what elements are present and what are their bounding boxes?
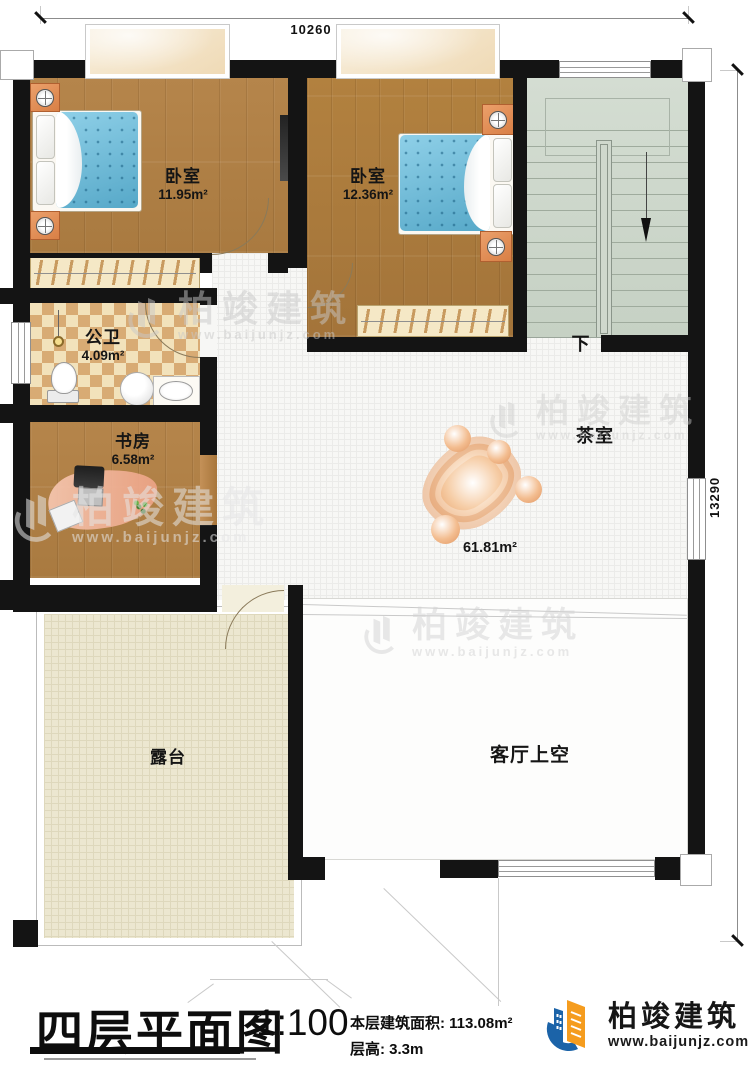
room-name: 书房 <box>78 432 188 452</box>
pillow <box>36 115 55 159</box>
scale-label: 1:100 <box>256 1002 349 1044</box>
room-label-tearoom: 茶室 <box>545 426 645 447</box>
room-name: 茶室 <box>545 426 645 447</box>
bed-sheet <box>56 112 82 208</box>
brand-website: www.baijunjz.com <box>608 1035 749 1050</box>
roof-line <box>383 888 501 1002</box>
stairs-down-label: 下 <box>566 334 596 355</box>
floor-height-value: 3.3m <box>389 1041 423 1058</box>
tv-panel <box>280 115 288 181</box>
title-underline <box>30 1047 240 1054</box>
wall <box>601 335 688 352</box>
wall-pier <box>0 580 14 610</box>
brand-logo: 柏竣建筑 www.baijunjz.com <box>540 994 749 1058</box>
room-name: 客厅上空 <box>450 745 610 767</box>
floor-height-label: 层高: <box>350 1041 385 1058</box>
brand-name: 柏竣建筑 <box>608 1002 749 1032</box>
room-area: 6.58m² <box>78 452 188 468</box>
lamp-icon <box>36 217 54 235</box>
roof-gable-line <box>210 979 328 980</box>
stair-arrow-line <box>646 152 647 218</box>
wall <box>497 60 559 78</box>
wall-pier <box>0 404 14 423</box>
wall <box>288 585 303 857</box>
room-area: 11.95m² <box>128 187 238 203</box>
wardrobe <box>30 256 200 289</box>
room-label-bedroom-left: 卧室 11.95m² <box>128 167 238 202</box>
room-name: 卧室 <box>313 167 423 187</box>
floor-height-row: 层高: 3.3m <box>350 1038 423 1059</box>
room-name: 公卫 <box>48 328 158 348</box>
nightstand <box>30 211 60 240</box>
wall-pier <box>288 857 325 880</box>
nightstand <box>30 83 60 112</box>
pillow <box>493 184 512 228</box>
room-area: 4.09m² <box>48 348 158 364</box>
stair-rail <box>596 140 612 338</box>
ledge <box>682 48 712 82</box>
room-area: 61.81m² <box>430 540 550 557</box>
ledge <box>0 50 34 80</box>
wall <box>440 860 498 878</box>
study-door-panel <box>200 455 217 525</box>
mattress <box>56 112 138 208</box>
nightstand <box>480 231 512 262</box>
tearoom-stool <box>487 440 511 464</box>
water-heater-icon <box>120 372 154 406</box>
right-dimension-label: 13290 <box>707 465 725 529</box>
room-label-bathroom: 公卫 4.09m² <box>48 328 158 363</box>
wardrobe <box>357 305 509 337</box>
wall <box>307 337 513 352</box>
wall <box>13 405 217 422</box>
wall <box>13 60 30 322</box>
floorplan-sheet: 10260 13290 <box>0 0 750 1068</box>
lamp-icon <box>487 238 505 256</box>
wall <box>268 253 288 273</box>
window <box>687 478 706 560</box>
tearoom-stool <box>444 425 471 452</box>
pillow <box>36 161 55 205</box>
living-void-area <box>302 598 688 860</box>
wall-pier <box>13 920 38 947</box>
wall <box>227 60 338 78</box>
brand-logo-icon <box>540 994 598 1058</box>
monitor-icon <box>73 465 104 489</box>
title-underline-thin <box>44 1058 256 1060</box>
roof-line <box>498 878 499 1006</box>
plant-icon <box>133 500 150 515</box>
wall <box>30 253 202 258</box>
sink-icon <box>159 381 193 401</box>
window <box>498 860 655 877</box>
wall <box>200 253 212 273</box>
door-opening <box>200 305 217 357</box>
window <box>559 61 651 78</box>
window <box>11 322 31 384</box>
room-label-bedroom-right: 卧室 12.36m² <box>313 167 423 202</box>
bay-window <box>85 24 230 79</box>
monitor-stand <box>78 487 104 506</box>
wall <box>688 60 705 478</box>
room-label-living-void: 客厅上空 <box>450 745 610 767</box>
stair-down-arrow-icon <box>641 218 651 242</box>
tearoom-stool <box>515 476 542 503</box>
room-area-tearoom: 61.81m² <box>430 540 550 557</box>
wall <box>13 585 217 612</box>
floor-area-label: 本层建筑面积: <box>350 1015 445 1032</box>
lamp-icon <box>36 89 54 107</box>
wall-pier <box>0 288 14 304</box>
room-label-study: 书房 6.58m² <box>78 432 188 467</box>
terrace-floor <box>44 614 294 938</box>
room-area: 12.36m² <box>313 187 423 203</box>
wall <box>288 78 307 268</box>
wall <box>513 78 527 352</box>
bed-sheet <box>464 135 490 231</box>
right-dimension-line <box>737 70 738 942</box>
lamp-icon <box>489 111 507 129</box>
floor-area-row: 本层建筑面积: 113.08m² <box>350 1012 513 1033</box>
room-name: 卧室 <box>128 167 238 187</box>
room-label-terrace: 露台 <box>118 748 218 768</box>
ledge <box>680 854 712 886</box>
bay-window <box>336 24 500 79</box>
pillow <box>493 138 512 182</box>
wall <box>688 560 705 880</box>
wall <box>13 288 217 303</box>
toilet-icon <box>51 362 77 394</box>
floor-area-value: 113.08m² <box>449 1015 512 1032</box>
nightstand <box>482 104 514 135</box>
room-name: 露台 <box>118 748 218 768</box>
top-dimension-line <box>40 18 688 19</box>
